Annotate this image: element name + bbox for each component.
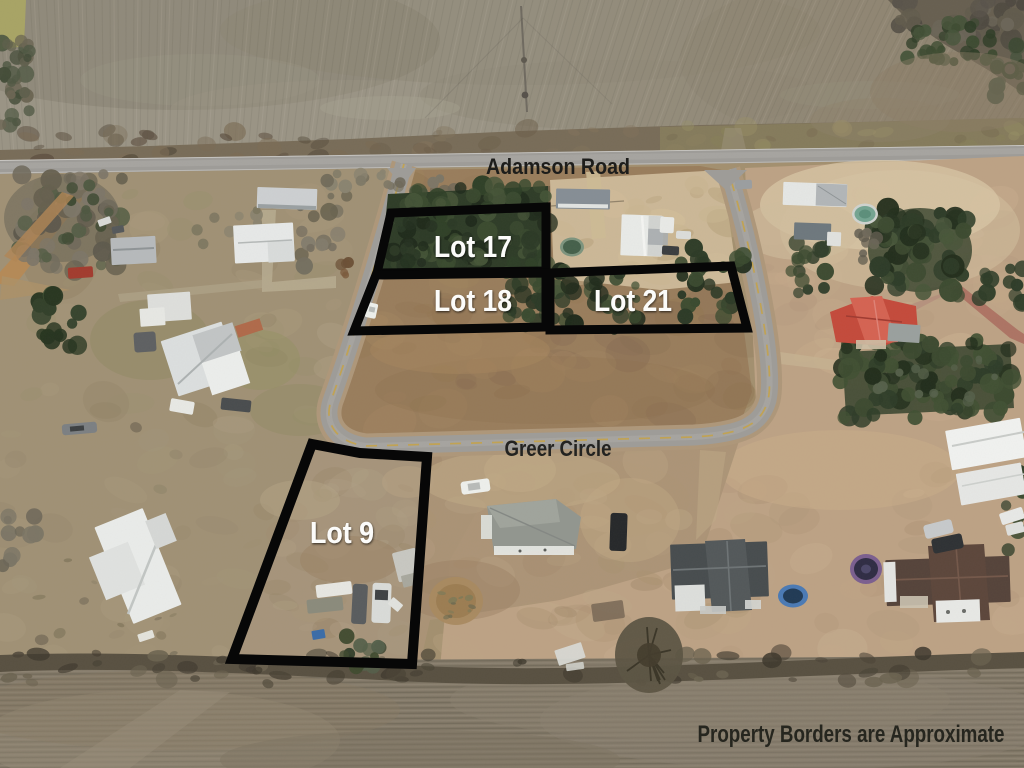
svg-text:Lot 9: Lot 9 — [310, 515, 374, 550]
svg-text:Greer Circle: Greer Circle — [505, 436, 612, 461]
svg-text:Lot 21: Lot 21 — [594, 283, 672, 318]
svg-text:Lot 18: Lot 18 — [434, 283, 512, 318]
svg-text:Lot 17: Lot 17 — [434, 229, 512, 264]
svg-text:Property Borders are Approxima: Property Borders are Approximate — [698, 721, 1005, 748]
svg-text:Adamson Road: Adamson Road — [486, 154, 630, 179]
